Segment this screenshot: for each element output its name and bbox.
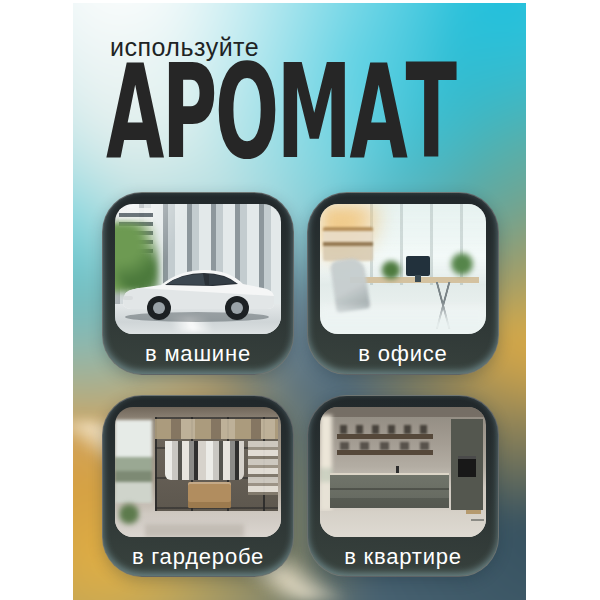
card-label-office: в офисе <box>308 334 498 374</box>
card-label-apartment: в квартире <box>308 537 498 576</box>
card-in-car: в машине <box>102 192 294 375</box>
hanging-clothes-shape <box>165 441 245 480</box>
poster-title: АРОМАТ <box>106 47 455 177</box>
oak-drawers-shape <box>188 482 231 508</box>
bookshelf-shape <box>323 227 373 261</box>
dishes-shape <box>340 442 430 450</box>
open-shelf-shape <box>337 450 433 455</box>
promo-poster: используйте АРОМАТ в машине <box>0 0 600 600</box>
folded-clothes-shape <box>248 441 278 496</box>
card-in-office: в офисе <box>307 192 499 375</box>
stool-shape <box>466 510 481 514</box>
storage-boxes-shape <box>155 419 278 440</box>
built-in-oven-shape <box>458 456 476 477</box>
ceiling-shape <box>320 407 486 417</box>
window-landscape-shape <box>115 420 152 503</box>
floor-shape <box>320 511 486 537</box>
plant-shape <box>118 501 140 527</box>
kitchen-photo <box>320 407 486 537</box>
dishes-shape <box>340 425 430 434</box>
glossy-floor-shape <box>320 305 486 334</box>
card-label-wardrobe: в гардеробе <box>103 537 293 576</box>
white-sedan-illustration <box>117 254 279 326</box>
office-chair-shape <box>330 256 371 312</box>
card-in-apartment: в квартире <box>307 395 499 577</box>
office-photo <box>320 204 486 334</box>
car-photo <box>115 204 281 334</box>
plant-shape <box>449 251 475 277</box>
card-label-car: в машине <box>103 334 293 374</box>
lower-cabinets-shape <box>330 475 450 509</box>
open-shelf-shape <box>337 434 433 439</box>
wardrobe-photo <box>115 407 281 537</box>
plant-shape <box>380 259 402 281</box>
cabinet-seam <box>330 488 450 490</box>
rug-shape <box>145 524 245 537</box>
card-in-wardrobe: в гардеробе <box>102 395 294 577</box>
monitor-shape <box>406 256 430 276</box>
